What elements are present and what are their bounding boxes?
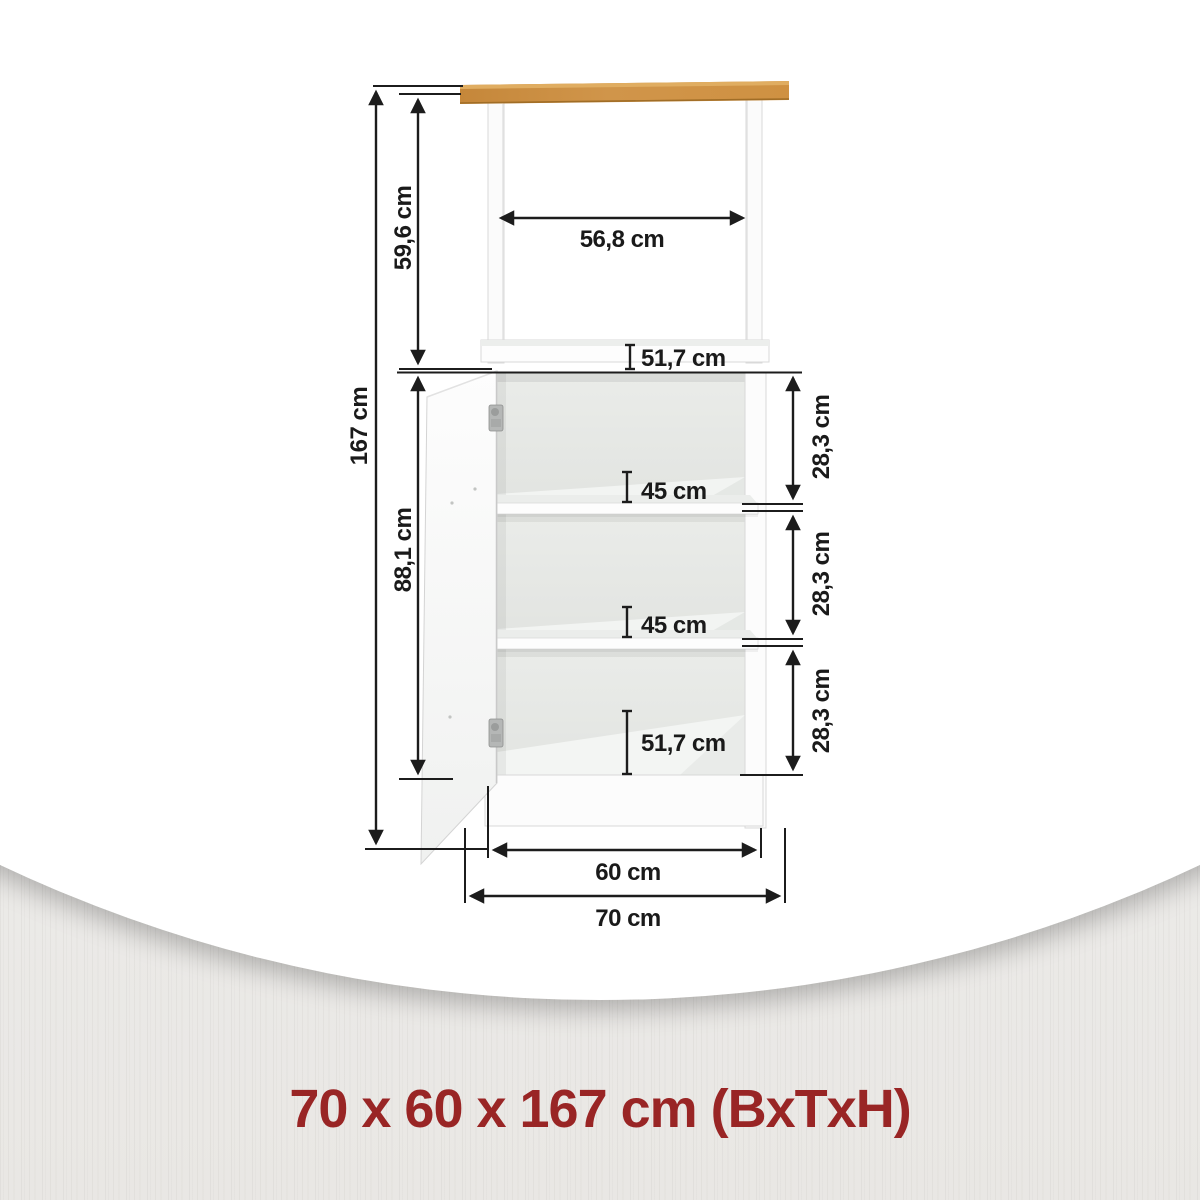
label-niche-depth: 51,7 cm [641,345,726,372]
wooden-worktop [460,81,789,104]
compartment-2 [497,514,745,638]
label-niche-width: 56,8 cm [580,226,665,253]
label-inner-width: 60 cm [595,859,661,886]
label-interior-height: 88,1 cm [390,508,417,593]
cabinet-door-open [421,371,503,864]
label-base-depth: 51,7 cm [641,730,726,757]
door-screw-hole [450,501,453,504]
door-screw-hole [473,487,476,490]
label-outer-width: 70 cm [595,905,661,932]
door-cast-shadow [497,373,506,775]
niche-bottom-shelf [481,340,769,362]
base-plinth [485,775,763,826]
label-shelf-depth-1: 45 cm [641,478,707,505]
label-compartment-3: 28,3 cm [808,669,835,754]
shelf-1 [487,495,758,517]
left-front-leg [488,103,504,363]
shelf-2 [487,630,758,652]
right-front-leg [746,99,762,363]
label-compartment-1: 28,3 cm [808,395,835,480]
label-compartment-2: 28,3 cm [808,532,835,617]
label-shelf-depth-2: 45 cm [641,612,707,639]
door-hinge-bottom [489,719,503,747]
cabinet-dimension-diagram: 167 cm 59,6 cm 88,1 cm 56,8 cm 51,7 cm 4… [0,0,1200,1200]
lower-cabinet [421,371,766,864]
label-total-height: 167 cm [346,387,373,465]
product-dimension-image: 167 cm 59,6 cm 88,1 cm 56,8 cm 51,7 cm 4… [0,0,1200,1200]
right-side-panel [745,372,766,828]
compartment-1 [497,373,745,503]
size-caption: 70 x 60 x 167 cm (BxTxH) [0,1078,1200,1140]
upper-open-section [460,81,789,363]
door-hinge-top [489,405,503,431]
label-niche-height: 59,6 cm [390,186,417,271]
door-screw-hole [448,715,451,718]
